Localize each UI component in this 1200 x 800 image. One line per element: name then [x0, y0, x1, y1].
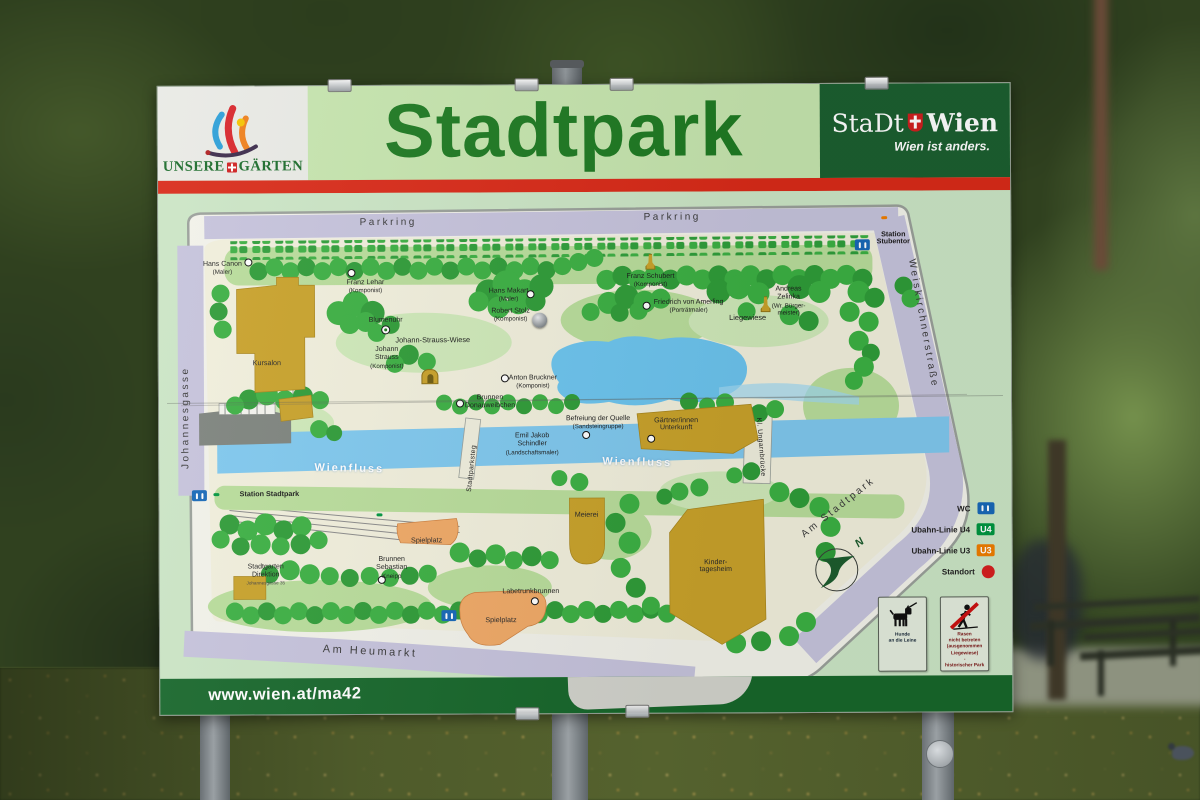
map-label: Johannesgasse	[180, 366, 192, 469]
map-label: Station Stadtpark	[240, 490, 300, 499]
map-label: Wienfluss	[602, 456, 672, 470]
map-label: Parkring	[360, 217, 417, 229]
sign-title: Stadtpark	[384, 86, 744, 175]
map-label: Stadtparksteg	[466, 445, 479, 493]
map-label: Brunnen Sebastian Kneipp	[376, 556, 407, 580]
mounting-clip	[515, 78, 539, 91]
legend-label: WC	[957, 504, 970, 513]
map-label: Stadtgarten Direktion Johannesgasse 35	[246, 563, 285, 585]
notice-pictogram-icon	[885, 601, 919, 633]
map-label: Anton Bruckner (Komponist)	[509, 374, 557, 390]
map-label: Wienfluss	[314, 462, 384, 476]
vienna-cross-icon	[227, 162, 237, 172]
stadtpark-sign: UNSERE GÄRTEN Stadtpark StaDt Wien Wien …	[157, 82, 1014, 716]
map-label: Station Stubentor	[877, 230, 910, 247]
map-label: Johann-Strauss-Wiese	[395, 336, 470, 345]
map-label: Kursalon	[253, 359, 281, 368]
pigeon	[1172, 746, 1194, 760]
legend-row: WC	[957, 502, 994, 514]
notice-sign: Rasen nicht betreten (ausgenommen Liegew…	[940, 596, 989, 671]
legend-symbol-icon	[977, 502, 994, 514]
blurred-people	[1012, 540, 1082, 660]
butterfly-icon	[200, 102, 266, 158]
map-label: Befreiung der Quelle (Sandsteingruppe)	[566, 415, 630, 431]
map-label: Weiskirchnerstraße	[905, 258, 940, 389]
vienna-shield-icon	[908, 114, 923, 132]
logo-wordmark: UNSERE GÄRTEN	[163, 158, 303, 176]
park-map: Parkring Parkring Johannesgasse Weiskirc…	[158, 190, 1012, 679]
mounting-clip	[865, 77, 889, 90]
mounting-clip	[625, 705, 649, 718]
compass-rose: N	[808, 541, 866, 599]
map-label: Kinder- tagesheim	[700, 558, 732, 575]
map-label: Gärtner/innen Unterkunft	[654, 416, 698, 433]
compass-icon	[808, 541, 866, 599]
map-label: Blumenuhr	[369, 317, 403, 325]
map-label: Liegewiese	[729, 314, 766, 323]
tree-trunk	[1094, 0, 1108, 270]
map-label: Hans Makart (Maler)	[489, 287, 529, 303]
legend-row: Ubahn-Linie U3 U3	[911, 544, 994, 556]
logo-word-2: GÄRTEN	[239, 158, 304, 175]
map-label: Friedrich von Amerling (Porträtmaler)	[654, 299, 724, 315]
map-label: Am Heumarkt	[322, 643, 417, 660]
notice-text: Hunde an die Leine	[889, 633, 917, 646]
notice-text: Rasen nicht betreten (ausgenommen Liegew…	[945, 632, 984, 670]
map-label: Meierei	[575, 511, 599, 520]
map-label: Robert Stolz (Komponist)	[491, 307, 530, 323]
notice-pictogram-icon	[947, 600, 981, 632]
panel-edge-overlap	[568, 675, 754, 710]
notice-signs: Hunde an die Leine	[878, 596, 989, 671]
stadt-wien-brand: StaDt Wien Wien ist anders.	[820, 83, 1010, 178]
unsere-gaerten-logo: UNSERE GÄRTEN	[158, 86, 308, 181]
footer-url: www.wien.at/ma42	[208, 684, 361, 705]
mounting-clip	[328, 79, 352, 92]
title-area: Stadtpark	[308, 84, 820, 180]
legend-label: Ubahn-Linie U3	[911, 546, 970, 555]
photo-scene: UNSERE GÄRTEN Stadtpark StaDt Wien Wien …	[0, 0, 1200, 800]
brand-slogan: Wien ist anders.	[894, 139, 990, 153]
map-label: Parkring	[644, 212, 701, 224]
legend-symbol-icon: U4	[977, 523, 995, 535]
legend-label: Standort	[942, 567, 975, 576]
map-label: Spielplatz	[411, 536, 442, 545]
map-label: Kl. Ungarnbrücke	[754, 418, 766, 477]
legend-row: Ubahn-Linie U4 U4	[911, 523, 994, 535]
notice-sign: Hunde an die Leine	[878, 597, 927, 672]
mounting-clip	[515, 707, 539, 720]
legend-label: Ubahn-Linie U4	[911, 525, 970, 534]
map-label: Andreas Zelinka (Wr. Bürger- meister)	[772, 285, 806, 316]
brand-word-1: StaDt	[832, 108, 904, 137]
map-label: Spielplatz	[485, 616, 516, 625]
legend-row: Standort	[942, 565, 995, 578]
map-label: Johann Strauss (Komponist)	[370, 346, 403, 370]
map-label: Franz Lehar (Komponist)	[347, 279, 385, 295]
logo-word-1: UNSERE	[163, 159, 225, 176]
legend-symbol-icon: U3	[977, 544, 995, 556]
sign-footer: www.wien.at/ma42	[160, 675, 1012, 715]
sign-header: UNSERE GÄRTEN Stadtpark StaDt Wien Wien …	[158, 83, 1010, 181]
map-label: Emil Jakob Schindler (Landschaftsmaler)	[506, 432, 559, 456]
brand-wordmark: StaDt Wien	[832, 108, 999, 138]
legend-symbol-icon	[982, 565, 995, 578]
map-label: Franz Schubert (Komponist)	[627, 273, 675, 289]
map-label: Brunnen Donauweibchen	[465, 394, 515, 411]
mounting-clip	[610, 78, 634, 91]
map-label: Hans Canon (Maler)	[203, 261, 242, 277]
map-label: Labetrunkbrunnen	[502, 588, 559, 596]
brand-word-2: Wien	[927, 108, 998, 137]
post-badge	[926, 740, 954, 768]
